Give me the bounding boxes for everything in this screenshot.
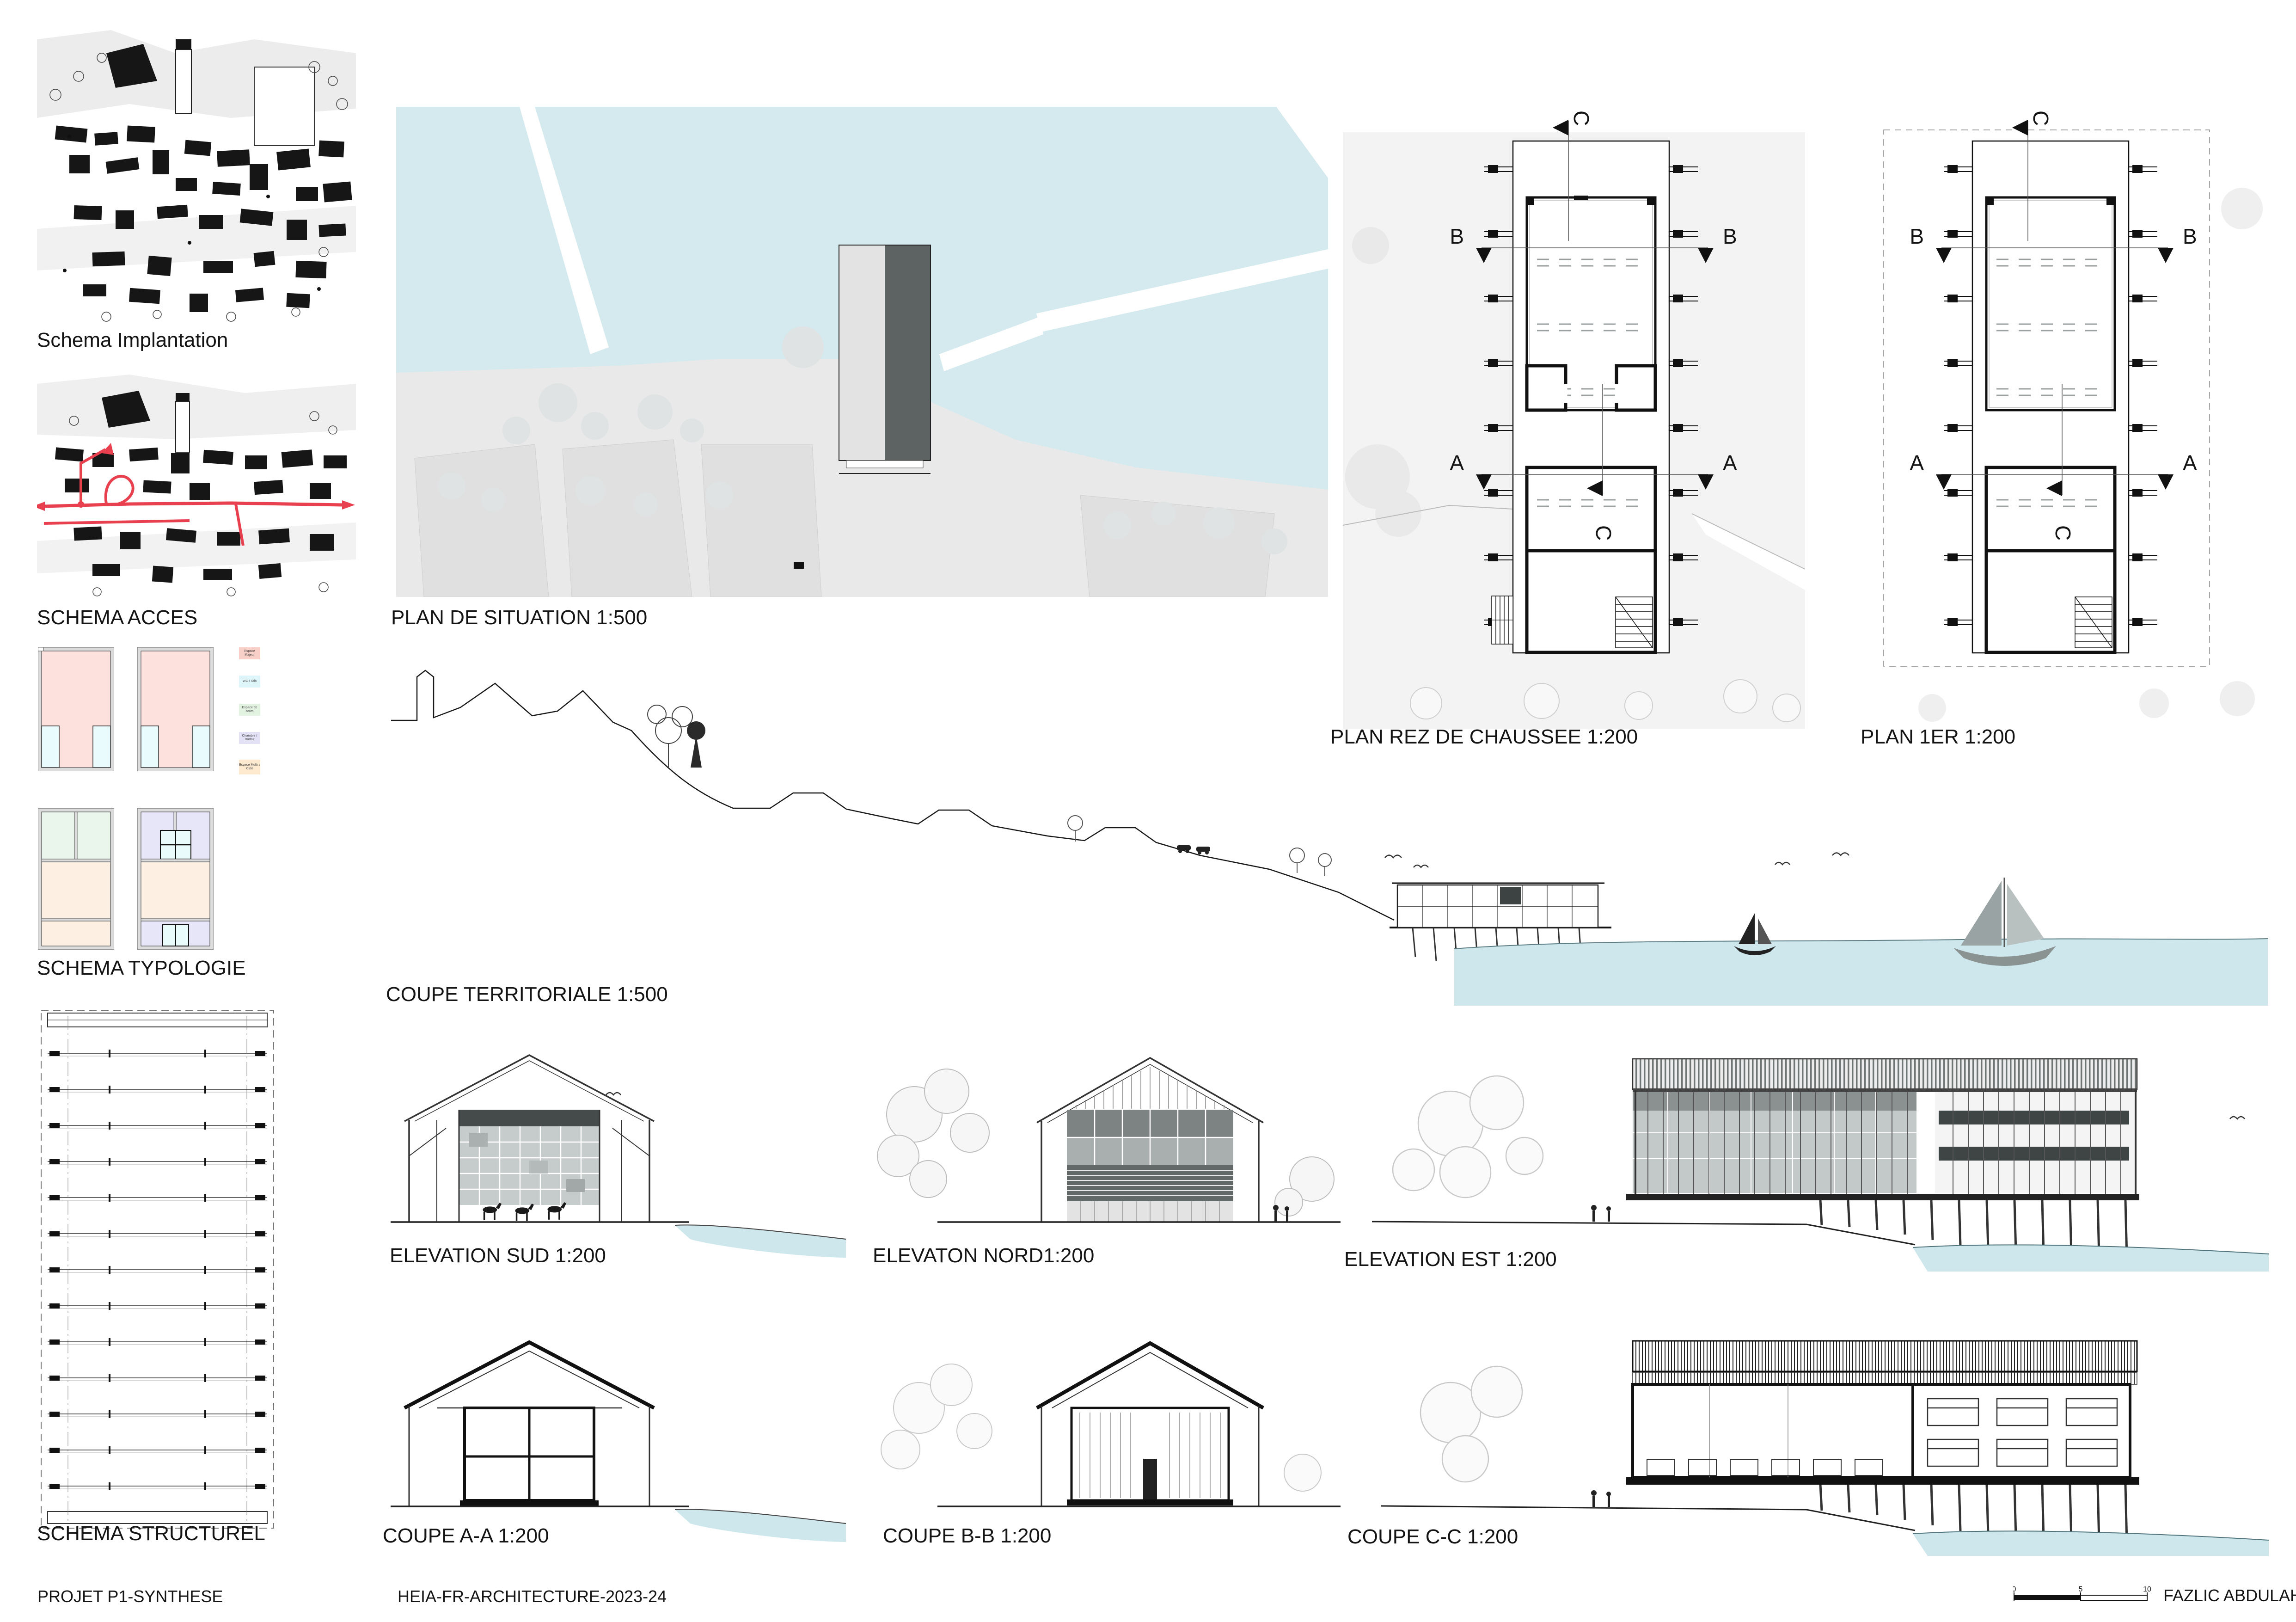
svg-text:10: 10	[2143, 1585, 2151, 1593]
legend-espace-de-cours: Espace de cours	[239, 704, 260, 716]
coupe-aa-drawing	[391, 1325, 853, 1547]
label-plan-situation: PLAN DE SITUATION 1:500	[391, 607, 647, 629]
coupe-territoriale-drawing	[391, 661, 2268, 1006]
footer-author: FAZLIC ABDULAH	[2163, 1586, 2296, 1605]
typologie-plan-rdc-a	[38, 647, 114, 771]
svg-text:B: B	[1723, 224, 1737, 248]
svg-text:C: C	[2051, 525, 2075, 541]
svg-text:A: A	[2183, 451, 2197, 475]
svg-text:C: C	[1569, 111, 1593, 126]
svg-text:0: 0	[2013, 1585, 2016, 1593]
typologie-plan-rdc-b	[137, 647, 214, 771]
label-elevation-nord: ELEVATON NORD1:200	[873, 1245, 1094, 1267]
svg-text:5: 5	[2079, 1585, 2083, 1593]
label-coupe-aa: COUPE A-A 1:200	[383, 1525, 549, 1547]
elevation-sud-drawing	[391, 1040, 853, 1262]
schema-implantation-drawing	[37, 12, 356, 331]
svg-text:B: B	[1450, 224, 1464, 248]
plan-1er-drawing: B B A A C C	[1877, 107, 2265, 729]
legend-wc-sdb: WC / Sdb	[239, 676, 260, 688]
label-elevation-est: ELEVATION EST 1:200	[1344, 1248, 1557, 1271]
svg-text:C: C	[1592, 525, 1616, 541]
elevation-est-drawing	[1344, 1040, 2269, 1272]
label-elevation-sud: ELEVATION SUD 1:200	[390, 1245, 606, 1267]
label-coupe-cc: COUPE C-C 1:200	[1347, 1526, 1518, 1548]
typologie-plan-etage-a	[38, 808, 114, 950]
label-coupe-bb: COUPE B-B 1:200	[883, 1525, 1051, 1547]
typologie-plan-etage-b	[137, 808, 214, 950]
footer-course: HEIA-FR-ARCHITECTURE-2023-24	[398, 1587, 667, 1606]
svg-text:A: A	[1723, 451, 1737, 475]
svg-text:A: A	[1450, 451, 1464, 475]
legend-espace-multi-cafe: Espace Multi. / Café	[239, 760, 260, 774]
schema-structurel-drawing	[40, 1009, 275, 1529]
schema-acces-drawing	[37, 365, 356, 606]
elevation-nord-drawing	[873, 1040, 1341, 1262]
svg-text:B: B	[2183, 224, 2197, 248]
label-coupe-territoriale: COUPE TERRITORIALE 1:500	[386, 983, 668, 1006]
svg-text:A: A	[1910, 451, 1924, 475]
person-icon	[1591, 1490, 1611, 1507]
svg-text:B: B	[1910, 224, 1924, 248]
svg-text:C: C	[2029, 111, 2053, 126]
coupe-cc-drawing	[1344, 1325, 2269, 1556]
person-icon	[1591, 1205, 1611, 1222]
coupe-bb-drawing	[873, 1325, 1341, 1547]
label-schema-structurel: SCHEMA STRUCTUREL	[37, 1523, 265, 1545]
plan-situation-drawing	[396, 107, 1328, 597]
bird-icon	[606, 1093, 621, 1095]
label-schema-acces: SCHEMA ACCES	[37, 607, 197, 629]
plan-rdc-drawing: B B A A C C	[1343, 107, 1805, 729]
legend-espace-majeur: Espace Majeur	[239, 647, 260, 659]
label-schema-typologie: SCHEMA TYPOLOGIE	[37, 957, 246, 979]
presentation-sheet: Schema Implantation	[0, 0, 2296, 1622]
bird-icon	[2230, 1117, 2245, 1119]
graphic-scalebar: 0 5 10	[2013, 1585, 2152, 1608]
label-schema-implantation: Schema Implantation	[37, 329, 228, 351]
footer-project: PROJET P1-SYNTHESE	[37, 1587, 223, 1606]
bird-icon	[1385, 853, 1849, 868]
legend-chambre-dortoir: Chambre / Dortoir	[239, 732, 260, 744]
